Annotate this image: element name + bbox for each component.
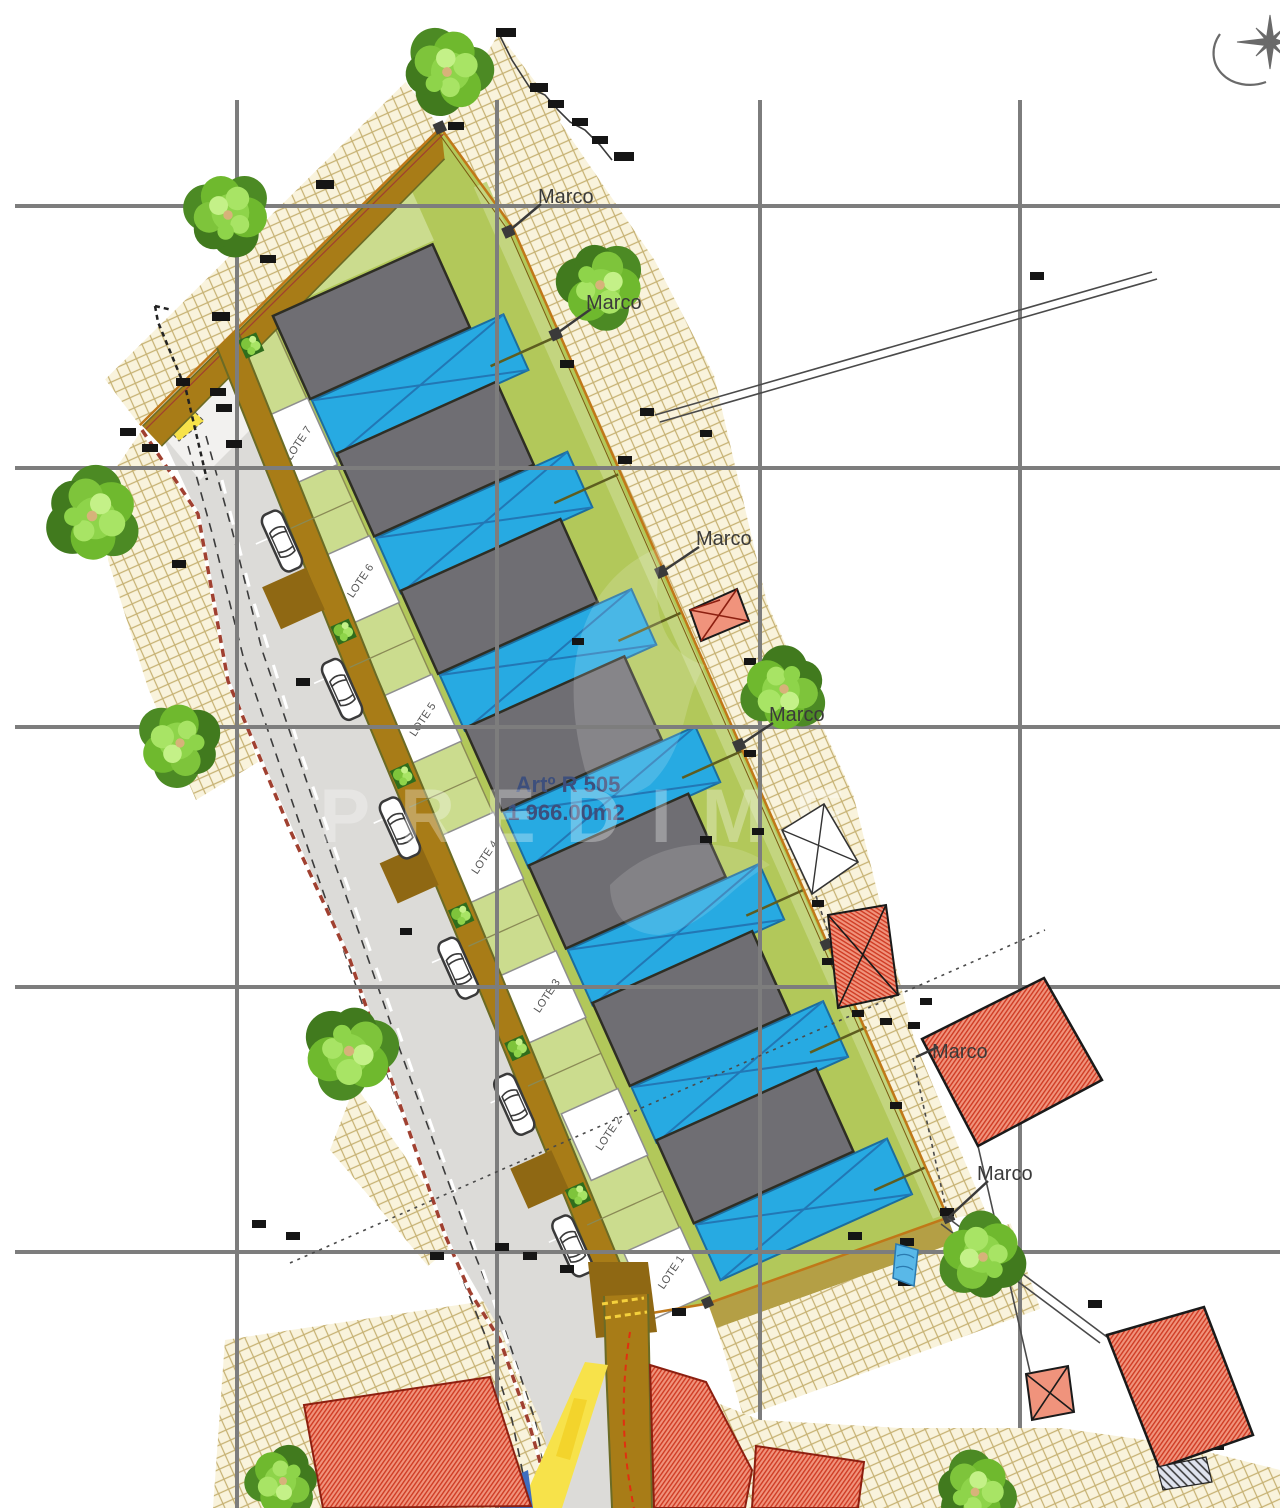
svg-text:Marco: Marco <box>977 1163 1033 1185</box>
svg-text:Marco: Marco <box>769 704 825 726</box>
svg-text:Marco: Marco <box>932 1041 988 1063</box>
svg-text:Marco: Marco <box>586 292 642 314</box>
svg-text:PREDIMED: PREDIMED <box>319 774 960 859</box>
svg-text:Marco: Marco <box>538 186 594 208</box>
svg-text:Marco: Marco <box>696 528 752 550</box>
